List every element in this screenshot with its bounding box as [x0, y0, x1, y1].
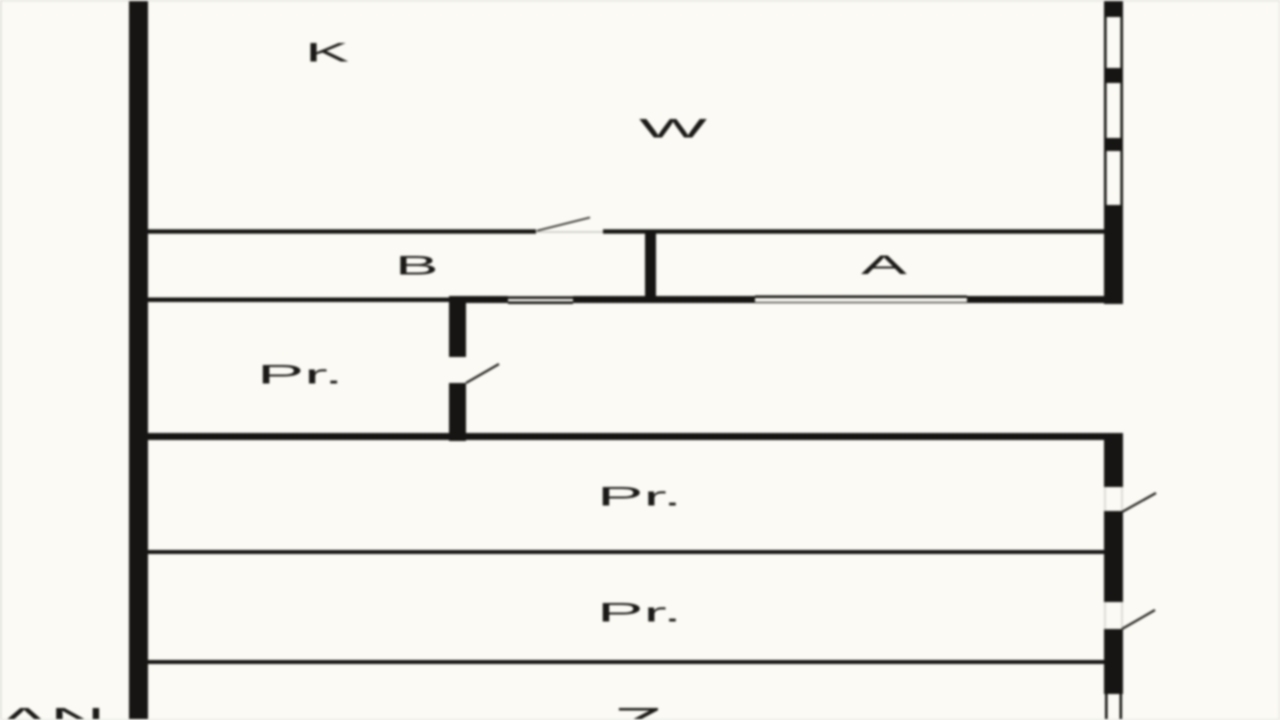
svg-text:Pr.: Pr. — [597, 598, 682, 628]
svg-text:Pr.: Pr. — [257, 360, 343, 390]
svg-text:B: B — [395, 250, 439, 280]
svg-text:AN: AN — [0, 703, 105, 720]
svg-text:Pr.: Pr. — [597, 482, 682, 512]
svg-text:W: W — [639, 113, 708, 143]
svg-text:K: K — [305, 37, 350, 67]
svg-text:A: A — [861, 250, 907, 280]
svg-text:Z: Z — [614, 701, 663, 720]
